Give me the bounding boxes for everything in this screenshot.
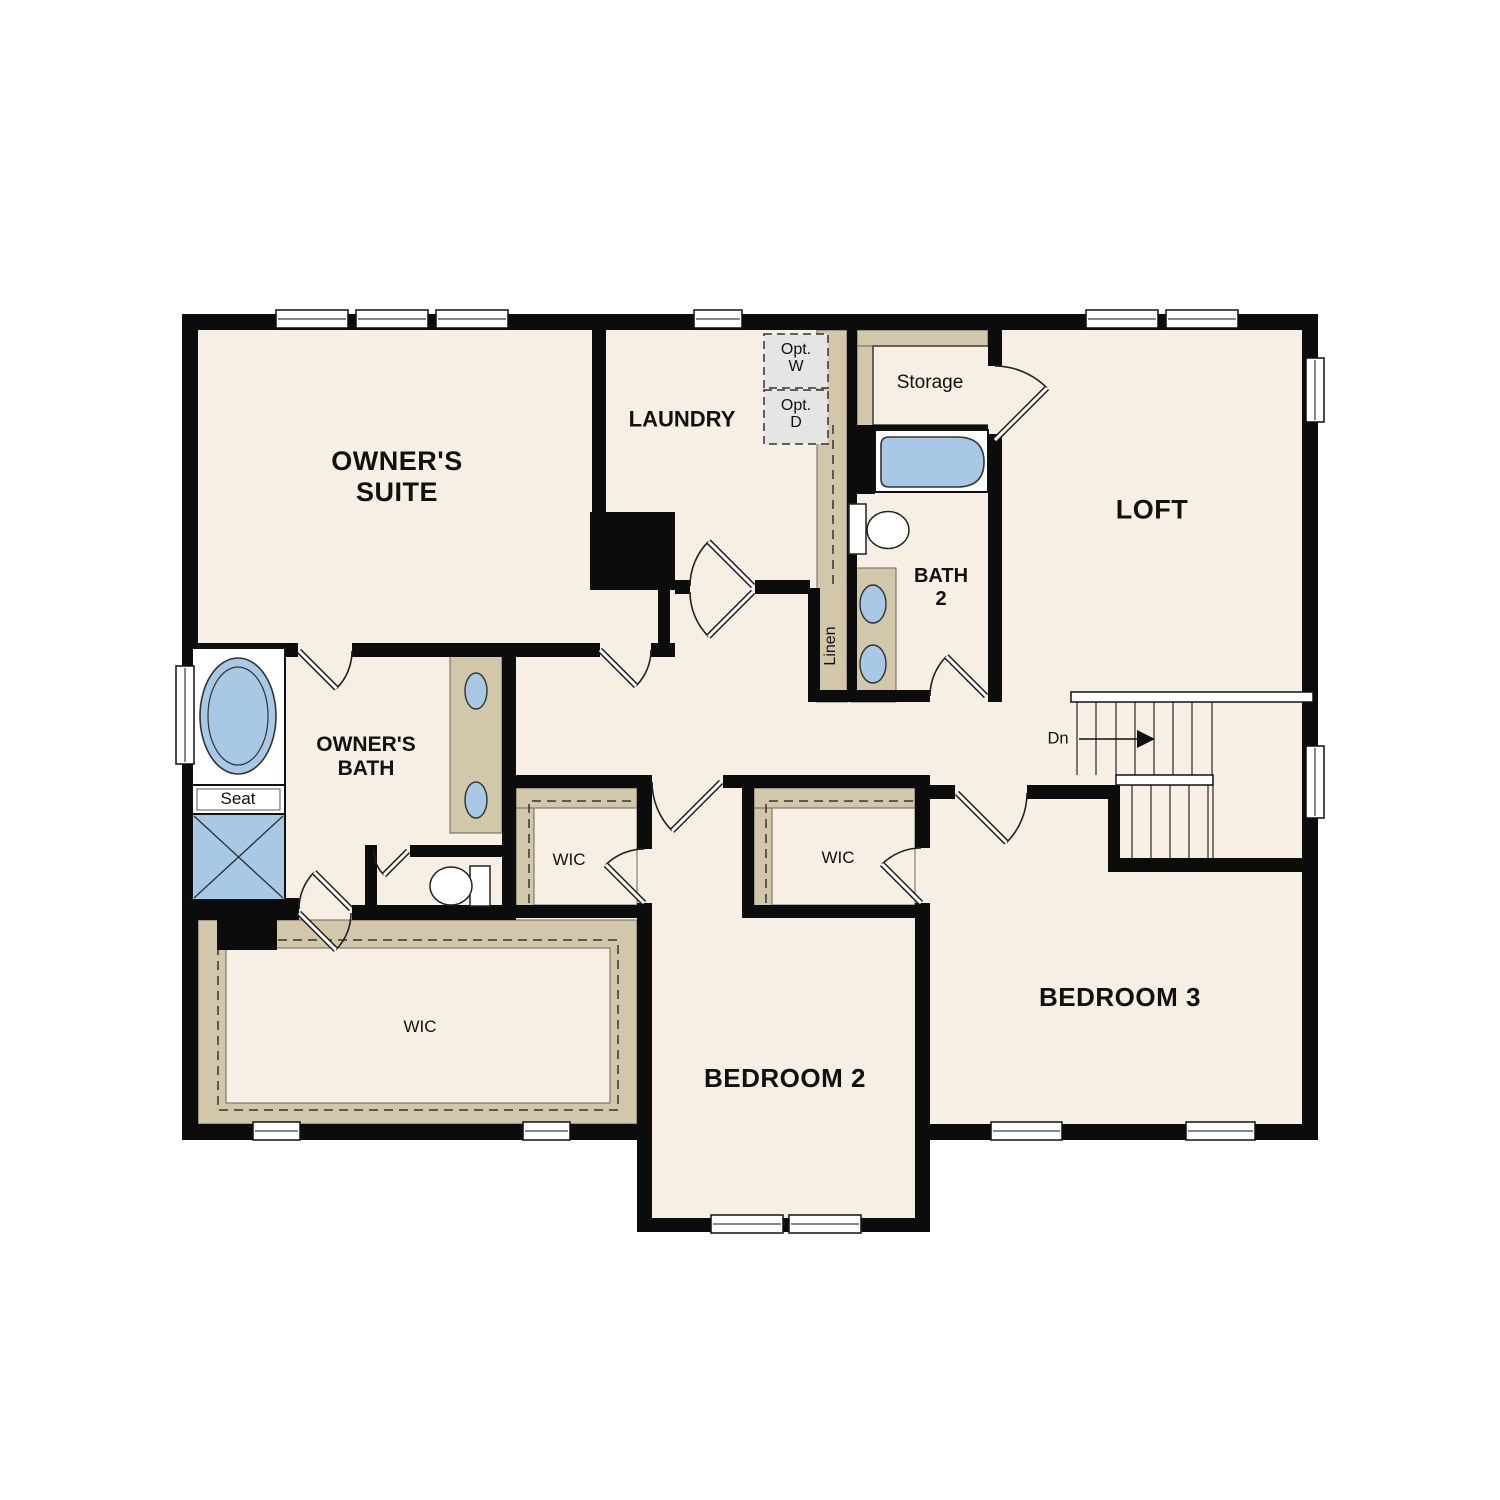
wall-wic2-left bbox=[742, 788, 754, 918]
window bbox=[1166, 310, 1238, 328]
room-label-laundry: LAUNDRY bbox=[629, 406, 736, 431]
wall-exterior-bottom-right bbox=[915, 1124, 1318, 1140]
wic2-shelf-left bbox=[754, 808, 772, 908]
storage-shelf-top bbox=[857, 330, 988, 346]
chase-block bbox=[590, 512, 675, 590]
wall-loft-left bbox=[988, 434, 1002, 702]
label-linen: Linen bbox=[822, 626, 840, 665]
window bbox=[1306, 358, 1324, 422]
stair-handrail-mid bbox=[1116, 775, 1213, 785]
wall-bedroom2-left bbox=[637, 903, 652, 1232]
window bbox=[789, 1215, 861, 1233]
floor-plan: OWNER'S SUITE LAUNDRY LOFT Storage BATH … bbox=[0, 0, 1500, 1500]
wic1-shelf-left bbox=[516, 808, 534, 908]
owners-tub bbox=[192, 648, 285, 785]
floor-plan-drawing bbox=[0, 0, 1500, 1500]
window bbox=[711, 1215, 783, 1233]
owners-shower bbox=[192, 814, 285, 900]
wall-owners-wic-top bbox=[352, 905, 514, 920]
room-label-wic-hall: WIC bbox=[552, 850, 585, 870]
window bbox=[436, 310, 508, 328]
window bbox=[694, 310, 742, 328]
room-label-storage: Storage bbox=[897, 372, 964, 394]
window bbox=[991, 1122, 1062, 1140]
window bbox=[1086, 310, 1158, 328]
window bbox=[1306, 746, 1324, 818]
window bbox=[176, 666, 194, 764]
room-label-bedroom3: BEDROOM 3 bbox=[1039, 983, 1201, 1013]
wall-suite-laundry bbox=[592, 330, 606, 512]
wall-owners-bath-right bbox=[502, 643, 516, 920]
owners-toilet bbox=[430, 866, 490, 906]
wall-stairs-bottom bbox=[1108, 858, 1318, 872]
wall-bedroom2-right bbox=[915, 903, 930, 1232]
room-label-loft: LOFT bbox=[1116, 494, 1188, 525]
wall-exterior-right bbox=[1302, 314, 1318, 1140]
window bbox=[523, 1122, 570, 1140]
bath2-tub bbox=[875, 430, 988, 492]
window bbox=[356, 310, 428, 328]
room-label-wic-bedroom3: WIC bbox=[821, 848, 854, 868]
window bbox=[253, 1122, 300, 1140]
window bbox=[276, 310, 348, 328]
label-seat: Seat bbox=[221, 789, 256, 809]
room-label-owners-suite: OWNER'S SUITE bbox=[331, 446, 462, 508]
room-label-wic-owners: WIC bbox=[403, 1017, 436, 1037]
label-opt-washer: Opt. W bbox=[781, 342, 811, 376]
label-opt-dryer: Opt. D bbox=[781, 398, 811, 432]
window bbox=[1186, 1122, 1255, 1140]
storage-shelf-left bbox=[857, 346, 873, 430]
label-stairs-down: Dn bbox=[1047, 730, 1068, 749]
wall-bath2-bottom bbox=[808, 690, 930, 702]
room-label-bath2: BATH 2 bbox=[914, 565, 968, 611]
room-label-owners-bath: OWNER'S BATH bbox=[316, 733, 416, 781]
wall-linen-left bbox=[808, 588, 820, 702]
wic1-shelf-top bbox=[516, 788, 637, 808]
room-label-bedroom2: BEDROOM 2 bbox=[704, 1064, 866, 1094]
stair-handrail-top bbox=[1071, 692, 1313, 702]
wic2-shelf-top bbox=[754, 788, 915, 808]
